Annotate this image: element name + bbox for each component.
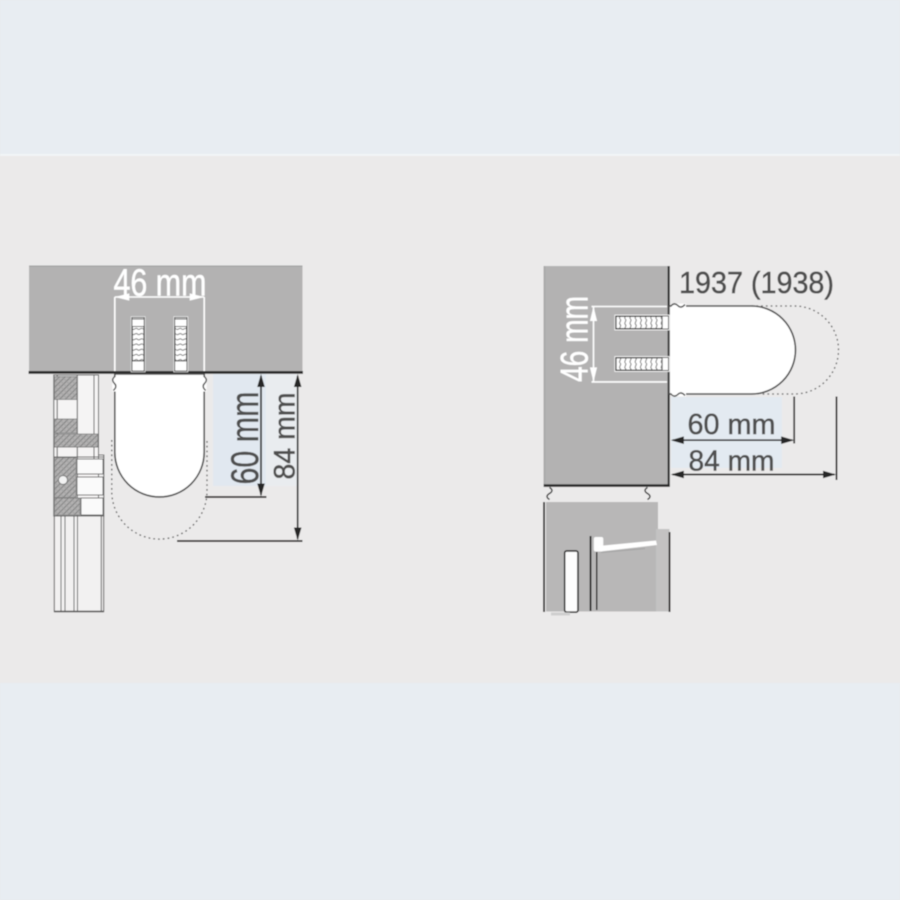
svg-text:60 mm: 60 mm (688, 409, 776, 441)
svg-text:46 mm: 46 mm (554, 296, 597, 382)
svg-text:60 mm: 60 mm (224, 392, 267, 485)
svg-text:1937 (1938): 1937 (1938) (679, 266, 834, 300)
svg-text:84 mm: 84 mm (269, 393, 302, 480)
svg-text:84 mm: 84 mm (689, 446, 775, 478)
svg-text:46 mm: 46 mm (114, 263, 207, 305)
